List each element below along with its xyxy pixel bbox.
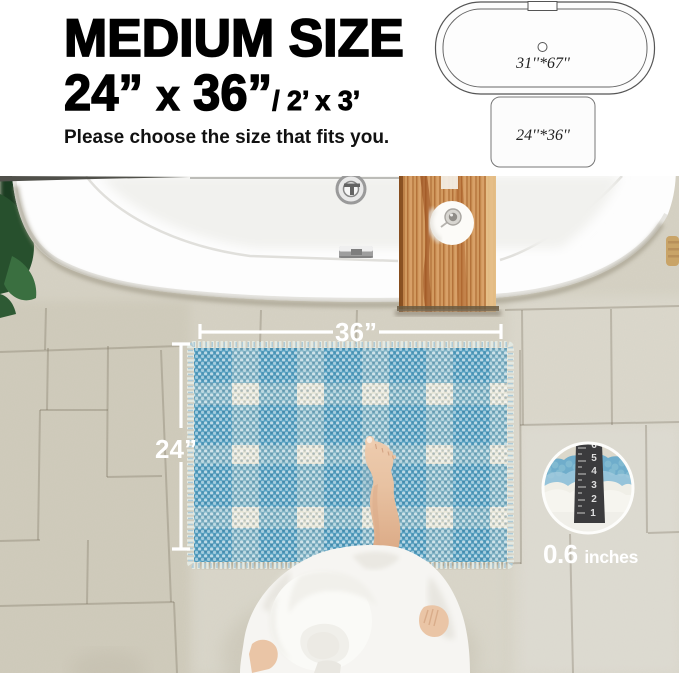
svg-text:5: 5 — [591, 453, 597, 464]
svg-text:36”: 36” — [335, 317, 377, 347]
svg-text:24''*36'': 24''*36'' — [516, 127, 570, 144]
svg-text:4: 4 — [591, 466, 597, 477]
svg-text:3: 3 — [591, 480, 597, 491]
svg-text:2: 2 — [591, 494, 597, 505]
svg-text:31''*67'': 31''*67'' — [515, 55, 570, 72]
svg-text:24”: 24” — [155, 434, 197, 464]
svg-text:1: 1 — [590, 508, 596, 519]
